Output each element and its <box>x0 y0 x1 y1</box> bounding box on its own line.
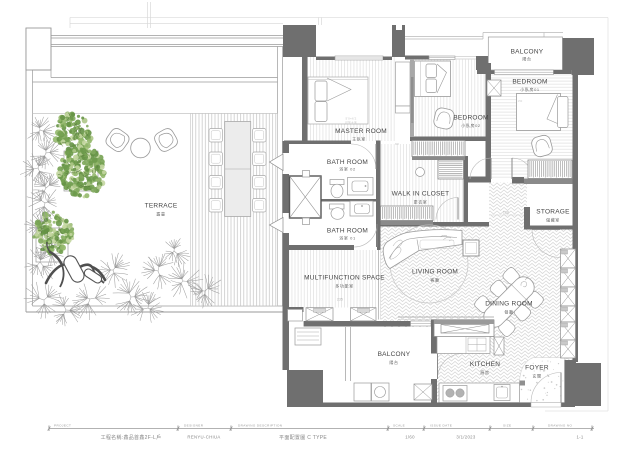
svg-text:BATH ROOM: BATH ROOM <box>327 159 368 166</box>
svg-text:工程名稱:鑫品首鑫2F-L戶: 工程名稱:鑫品首鑫2F-L戶 <box>101 434 162 441</box>
svg-text:TERRACE: TERRACE <box>145 203 178 210</box>
svg-text:浴室 01: 浴室 01 <box>339 235 356 241</box>
svg-text:150: 150 <box>518 99 523 103</box>
svg-text:LIVING ROOM: LIVING ROOM <box>412 269 458 276</box>
svg-text:WALK IN CLOSET: WALK IN CLOSET <box>392 191 450 198</box>
svg-text:浴室 02: 浴室 02 <box>339 166 356 172</box>
svg-text:PROJECT: PROJECT <box>54 424 71 428</box>
svg-text:BALCONY: BALCONY <box>511 49 544 56</box>
svg-text:小臥房02: 小臥房02 <box>461 122 481 128</box>
svg-text:STORAGE: STORAGE <box>536 209 570 216</box>
svg-text:陽台: 陽台 <box>389 359 398 365</box>
svg-text:BALCONY: BALCONY <box>378 351 411 358</box>
svg-text:多功能室: 多功能室 <box>335 283 353 289</box>
svg-text:DRAWING NO: DRAWING NO <box>548 424 573 428</box>
svg-text:BEDROOM: BEDROOM <box>512 79 547 86</box>
svg-text:BEDROOM: BEDROOM <box>453 115 488 122</box>
svg-text:露臺: 露臺 <box>156 211 165 217</box>
svg-text:SCALE: SCALE <box>393 424 405 428</box>
svg-text:SIZE: SIZE <box>503 424 511 428</box>
svg-text:玄關: 玄關 <box>532 373 541 379</box>
svg-text:235: 235 <box>337 298 343 302</box>
svg-text:MASTER ROOM: MASTER ROOM <box>335 128 387 135</box>
svg-text:DINING ROOM: DINING ROOM <box>485 301 533 308</box>
svg-text:DRAWING DESCRIPTION: DRAWING DESCRIPTION <box>238 424 282 428</box>
svg-text:DESIGNER: DESIGNER <box>184 424 204 428</box>
svg-text:平面配置圖 C TYPE: 平面配置圖 C TYPE <box>279 435 327 441</box>
svg-text:ISSUE DATE: ISSUE DATE <box>430 424 452 428</box>
svg-text:1/60: 1/60 <box>405 435 415 440</box>
svg-text:陽台: 陽台 <box>522 56 531 62</box>
svg-text:廚房: 廚房 <box>480 369 489 375</box>
svg-text:BATH ROOM: BATH ROOM <box>327 228 368 235</box>
svg-text:小臥房01: 小臥房01 <box>520 86 540 92</box>
svg-text:90: 90 <box>395 142 399 146</box>
svg-text:MULTIFUNCTION SPACE: MULTIFUNCTION SPACE <box>304 275 385 282</box>
svg-text:主臥室: 主臥室 <box>352 136 366 142</box>
svg-text:可放大床: 可放大床 <box>345 121 357 125</box>
svg-text:餐廳: 餐廳 <box>504 309 513 315</box>
svg-text:客廳: 客廳 <box>430 277 439 283</box>
svg-text:KITCHEN: KITCHEN <box>470 361 500 368</box>
svg-text:更衣室: 更衣室 <box>414 199 428 205</box>
svg-text:儲藏室: 儲藏室 <box>546 217 560 223</box>
svg-text:1-1: 1-1 <box>576 435 583 440</box>
svg-text:3/1/2023: 3/1/2023 <box>456 435 475 440</box>
svg-text:RENYU-CHIUA: RENYU-CHIUA <box>187 435 220 440</box>
svg-text:120: 120 <box>503 211 509 215</box>
svg-text:FOYER: FOYER <box>525 365 549 372</box>
